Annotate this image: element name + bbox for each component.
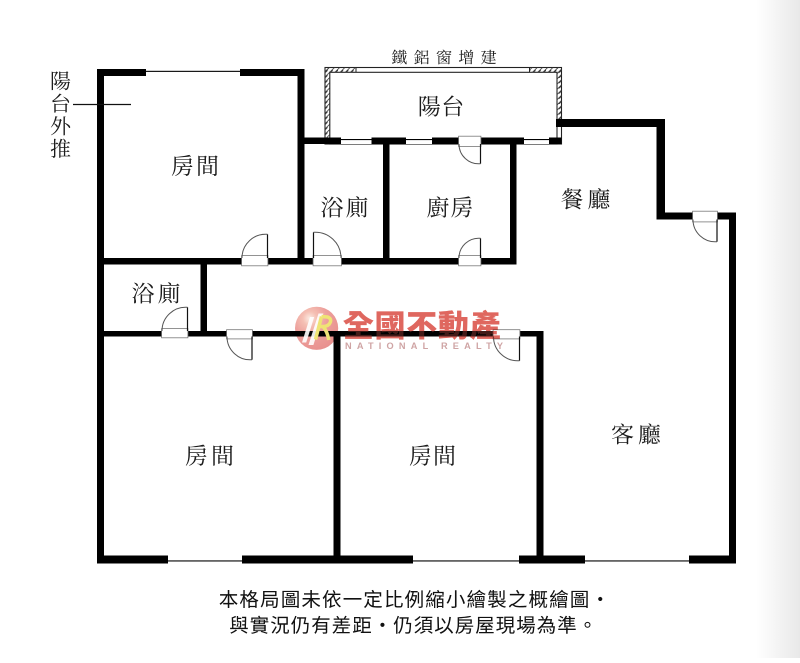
svg-text:NATIONAL REALTY: NATIONAL REALTY bbox=[345, 341, 508, 351]
